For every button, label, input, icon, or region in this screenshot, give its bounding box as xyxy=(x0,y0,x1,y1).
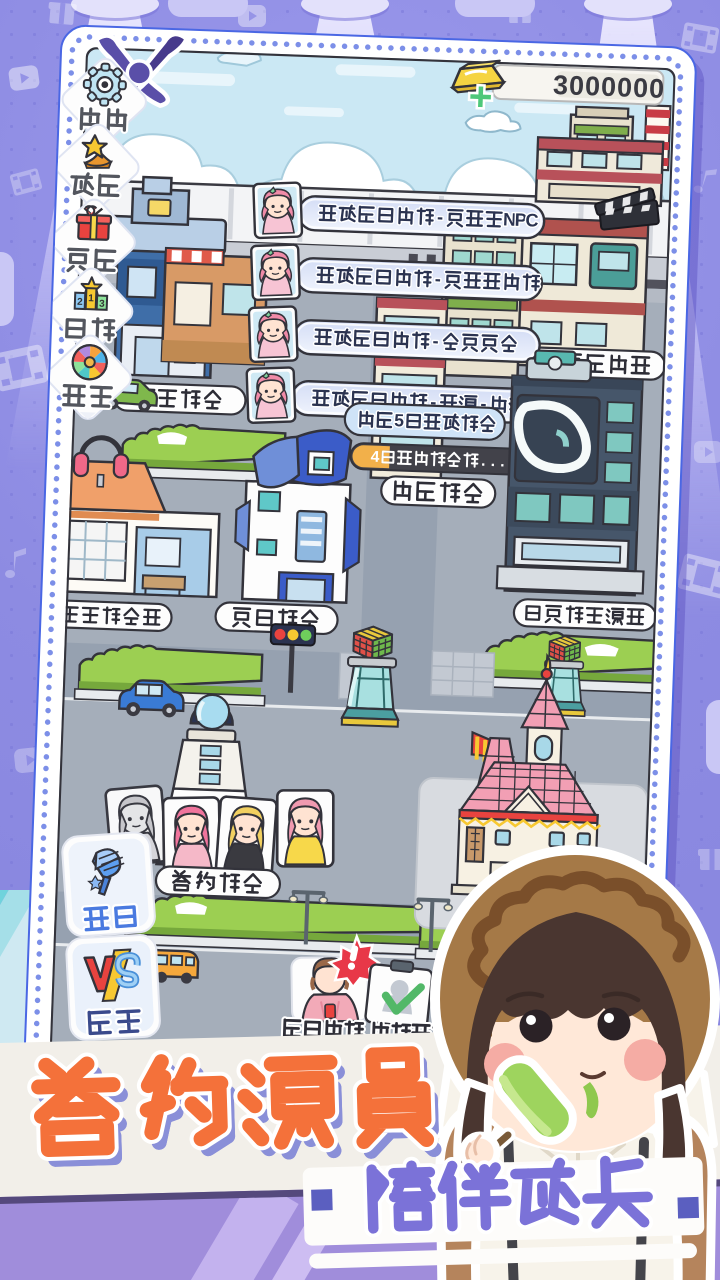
svg-text:.: . xyxy=(500,453,505,470)
svg-text:5: 5 xyxy=(394,410,405,430)
svg-text:.: . xyxy=(491,453,496,470)
svg-text:-: - xyxy=(437,207,444,227)
svg-text:1: 1 xyxy=(88,293,94,304)
svg-text:4: 4 xyxy=(370,449,380,466)
svg-text:.: . xyxy=(481,453,486,470)
svg-text:3: 3 xyxy=(99,299,105,310)
svg-text:2: 2 xyxy=(77,297,83,308)
svg-text:C: C xyxy=(525,210,539,230)
svg-text:3000000: 3000000 xyxy=(553,70,666,104)
svg-text:-: - xyxy=(435,269,442,289)
svg-text:-: - xyxy=(432,331,439,351)
